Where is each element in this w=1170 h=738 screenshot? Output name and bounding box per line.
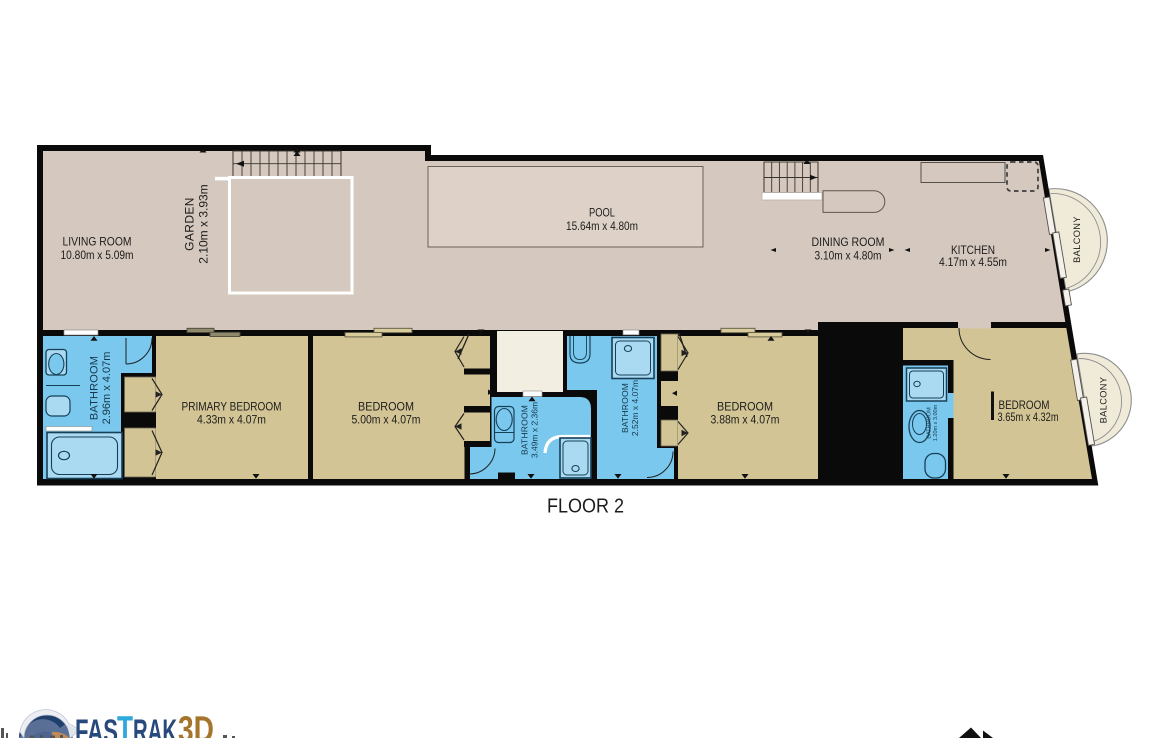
- svg-text:3.10m x 4.80m: 3.10m x 4.80m: [815, 249, 882, 263]
- svg-text:2.96m x 4.07m: 2.96m x 4.07m: [101, 352, 113, 425]
- svg-text:3.65m x 4.32m: 3.65m x 4.32m: [998, 410, 1059, 424]
- svg-text:RAK: RAK: [133, 713, 177, 738]
- svg-text:POOL: POOL: [589, 206, 615, 220]
- svg-text:5.00m x 4.07m: 5.00m x 4.07m: [352, 413, 421, 427]
- svg-text:FAS: FAS: [75, 713, 118, 738]
- svg-text:BATHROOM: BATHROOM: [89, 356, 101, 420]
- svg-text:DINING ROOM: DINING ROOM: [812, 235, 885, 249]
- svg-text:BATHROOM: BATHROOM: [520, 405, 530, 455]
- svg-text:10.80m x 5.09m: 10.80m x 5.09m: [61, 248, 134, 262]
- svg-text:BEDROOM: BEDROOM: [358, 400, 414, 414]
- svg-text:15.64m x 4.80m: 15.64m x 4.80m: [566, 219, 638, 233]
- svg-text:FLOOR 2: FLOOR 2: [547, 496, 624, 518]
- svg-text:BALCONY: BALCONY: [1072, 216, 1082, 263]
- svg-text:2.52m x 4.07m: 2.52m x 4.07m: [630, 380, 640, 436]
- svg-text:2.10m x 3.93m: 2.10m x 3.93m: [197, 184, 211, 263]
- svg-text:BEDROOM: BEDROOM: [717, 400, 773, 414]
- svg-text:GARDEN: GARDEN: [183, 197, 197, 251]
- svg-text:4.33m x 4.07m: 4.33m x 4.07m: [197, 413, 266, 427]
- svg-text:PRIMARY BEDROOM: PRIMARY BEDROOM: [182, 400, 282, 414]
- svg-text:BATHROOM: BATHROOM: [927, 407, 933, 439]
- svg-text:LIVING ROOM: LIVING ROOM: [63, 235, 132, 249]
- svg-text:3D: 3D: [178, 709, 214, 738]
- svg-text:BALCONY: BALCONY: [1099, 377, 1109, 424]
- svg-text:1.20m x 3.00m: 1.20m x 3.00m: [933, 404, 939, 441]
- svg-text:BATHROOM: BATHROOM: [620, 383, 630, 433]
- svg-text:3.88m x 4.07m: 3.88m x 4.07m: [711, 413, 780, 427]
- svg-text:T: T: [117, 710, 133, 738]
- svg-text:3.49m x 2.36m: 3.49m x 2.36m: [530, 402, 540, 458]
- svg-text:4.17m x 4.55m: 4.17m x 4.55m: [939, 255, 1007, 269]
